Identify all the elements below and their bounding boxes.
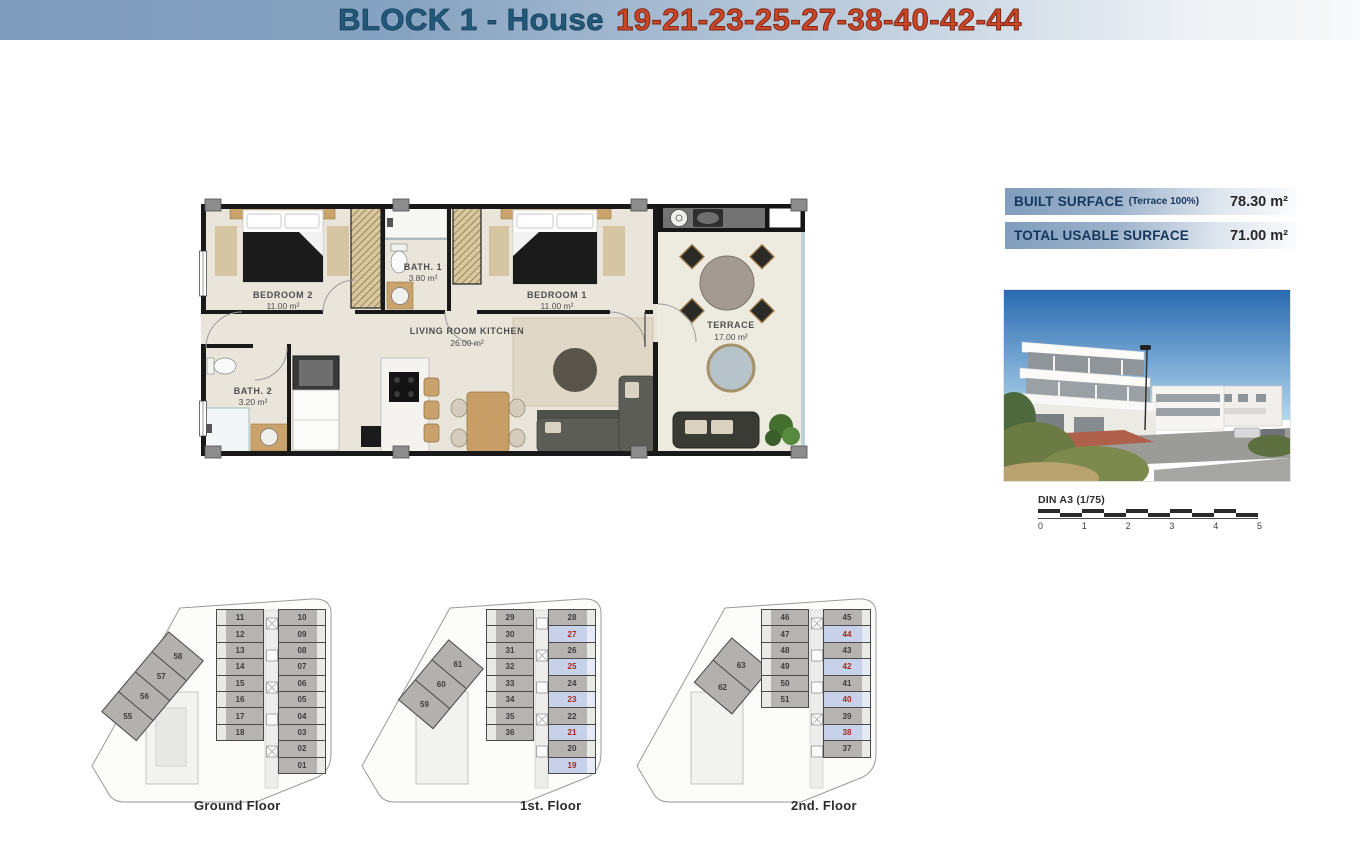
- scale-bar-label: DIN A3 (1/75): [1038, 494, 1262, 506]
- left-unit-column: 464748495051: [761, 610, 809, 708]
- floor-label-ground: Ground Floor: [194, 798, 281, 813]
- room-label-bedroom2: BEDROOM 2: [253, 290, 313, 300]
- room-area-bedroom1: 11.00 m²: [541, 301, 574, 311]
- unit-14: 14: [216, 658, 264, 675]
- right-unit-column: 454443424140393837: [823, 610, 871, 758]
- surface-table: BUILT SURFACE (Terrace 100%) 78.30 m² TO…: [1005, 188, 1297, 256]
- unit-29: 29: [486, 609, 534, 626]
- scale-tick-0: 0: [1038, 521, 1043, 531]
- unit-12: 12: [216, 625, 264, 642]
- unit-30: 30: [486, 625, 534, 642]
- page-title-house-numbers: 19-21-23-25-27-38-40-42-44: [616, 2, 1022, 38]
- room-area-bath2: 3.20 m²: [239, 397, 268, 407]
- unit-49: 49: [761, 658, 809, 675]
- plan-sheet: BLOCK 1 - House 19-21-23-25-27-38-40-42-…: [0, 0, 1360, 850]
- unit-40: 40: [823, 691, 871, 708]
- unit-18: 18: [216, 724, 264, 741]
- header-band: BLOCK 1 - House 19-21-23-25-27-38-40-42-…: [0, 0, 1360, 40]
- unit-31: 31: [486, 642, 534, 659]
- unit-01: 01: [278, 757, 326, 774]
- unit-36: 36: [486, 724, 534, 741]
- unit-46: 46: [761, 609, 809, 626]
- unit-39: 39: [823, 707, 871, 724]
- unit-06: 06: [278, 675, 326, 692]
- scale-tick-3: 3: [1169, 521, 1174, 531]
- unit-45: 45: [823, 609, 871, 626]
- floor-label-second: 2nd. Floor: [791, 798, 857, 813]
- unit-41: 41: [823, 675, 871, 692]
- unit-11: 11: [216, 609, 264, 626]
- room-label-living: LIVING ROOM KITCHEN: [410, 326, 524, 336]
- unit-48: 48: [761, 642, 809, 659]
- room-label-terrace: TERRACE: [707, 320, 755, 330]
- unit-32: 32: [486, 658, 534, 675]
- unit-38: 38: [823, 724, 871, 741]
- unit-51: 51: [761, 691, 809, 708]
- room-label-bedroom1: BEDROOM 1: [527, 290, 587, 300]
- page-title-block: BLOCK 1 - House: [338, 2, 604, 38]
- unit-27: 27: [548, 625, 596, 642]
- left-unit-column: 2930313233343536: [486, 610, 534, 741]
- usable-surface-row: TOTAL USABLE SURFACE 71.00 m²: [1005, 222, 1297, 249]
- unit-34: 34: [486, 691, 534, 708]
- scale-tick-5: 5: [1257, 521, 1262, 531]
- right-unit-column: 28272625242322212019: [548, 610, 596, 774]
- floor-label-first: 1st. Floor: [520, 798, 582, 813]
- room-label-bath2: BATH. 2: [234, 386, 273, 396]
- room-area-living: 26.00 m²: [450, 338, 484, 348]
- key-plan-first-floor: 616059 2930313233343536 2827262524232221…: [352, 596, 612, 811]
- unit-25: 25: [548, 658, 596, 675]
- unit-02: 02: [278, 740, 326, 757]
- right-unit-column: 10090807060504030201: [278, 610, 326, 774]
- built-surface-value: 78.30 m²: [1230, 194, 1288, 210]
- built-surface-label: BUILT SURFACE: [1014, 194, 1124, 209]
- building-photo-art: [1004, 290, 1290, 481]
- unit-37: 37: [823, 740, 871, 757]
- unit-10: 10: [278, 609, 326, 626]
- building-photo: [1003, 289, 1291, 482]
- scale-bar: DIN A3 (1/75) 0 1 2 3 4 5: [1038, 494, 1262, 531]
- scale-tick-1: 1: [1082, 521, 1087, 531]
- scale-bar-ticks: 0 1 2 3 4 5: [1038, 521, 1262, 531]
- unit-33: 33: [486, 675, 534, 692]
- floor-plan-drawing: BEDROOM 2 BATH. 1 BEDROOM 1 LIVING ROOM …: [195, 196, 815, 471]
- unit-28: 28: [548, 609, 596, 626]
- room-label-bath1: BATH. 1: [404, 262, 443, 272]
- unit-04: 04: [278, 707, 326, 724]
- unit-26: 26: [548, 642, 596, 659]
- key-plan-ground-floor: 58575655 1112131415161718 10090807060504…: [82, 596, 342, 811]
- room-area-bath1: 3.80 m²: [409, 273, 438, 283]
- unit-50: 50: [761, 675, 809, 692]
- room-area-bedroom2: 11.00 m²: [267, 301, 300, 311]
- unit-16: 16: [216, 691, 264, 708]
- unit-24: 24: [548, 675, 596, 692]
- built-surface-row: BUILT SURFACE (Terrace 100%) 78.30 m²: [1005, 188, 1297, 215]
- unit-35: 35: [486, 707, 534, 724]
- unit-22: 22: [548, 707, 596, 724]
- unit-42: 42: [823, 658, 871, 675]
- unit-21: 21: [548, 724, 596, 741]
- scale-bar-ruler: [1038, 509, 1258, 519]
- unit-19: 19: [548, 757, 596, 774]
- usable-surface-label: TOTAL USABLE SURFACE: [1014, 228, 1189, 243]
- unit-47: 47: [761, 625, 809, 642]
- unit-44: 44: [823, 625, 871, 642]
- left-unit-column: 1112131415161718: [216, 610, 264, 741]
- unit-13: 13: [216, 642, 264, 659]
- usable-surface-value: 71.00 m²: [1230, 228, 1288, 244]
- unit-17: 17: [216, 707, 264, 724]
- built-surface-note: (Terrace 100%): [1129, 196, 1199, 207]
- scale-tick-4: 4: [1213, 521, 1218, 531]
- unit-20: 20: [548, 740, 596, 757]
- unit-15: 15: [216, 675, 264, 692]
- unit-23: 23: [548, 691, 596, 708]
- unit-03: 03: [278, 724, 326, 741]
- unit-09: 09: [278, 625, 326, 642]
- unit-05: 05: [278, 691, 326, 708]
- room-area-terrace: 17.00 m²: [714, 332, 748, 342]
- unit-43: 43: [823, 642, 871, 659]
- unit-08: 08: [278, 642, 326, 659]
- apartment-floor-plan: BEDROOM 2 BATH. 1 BEDROOM 1 LIVING ROOM …: [195, 196, 815, 471]
- key-plan-second-floor: 6362 464748495051 454443424140393837 2nd…: [627, 596, 887, 811]
- scale-tick-2: 2: [1126, 521, 1131, 531]
- unit-07: 07: [278, 658, 326, 675]
